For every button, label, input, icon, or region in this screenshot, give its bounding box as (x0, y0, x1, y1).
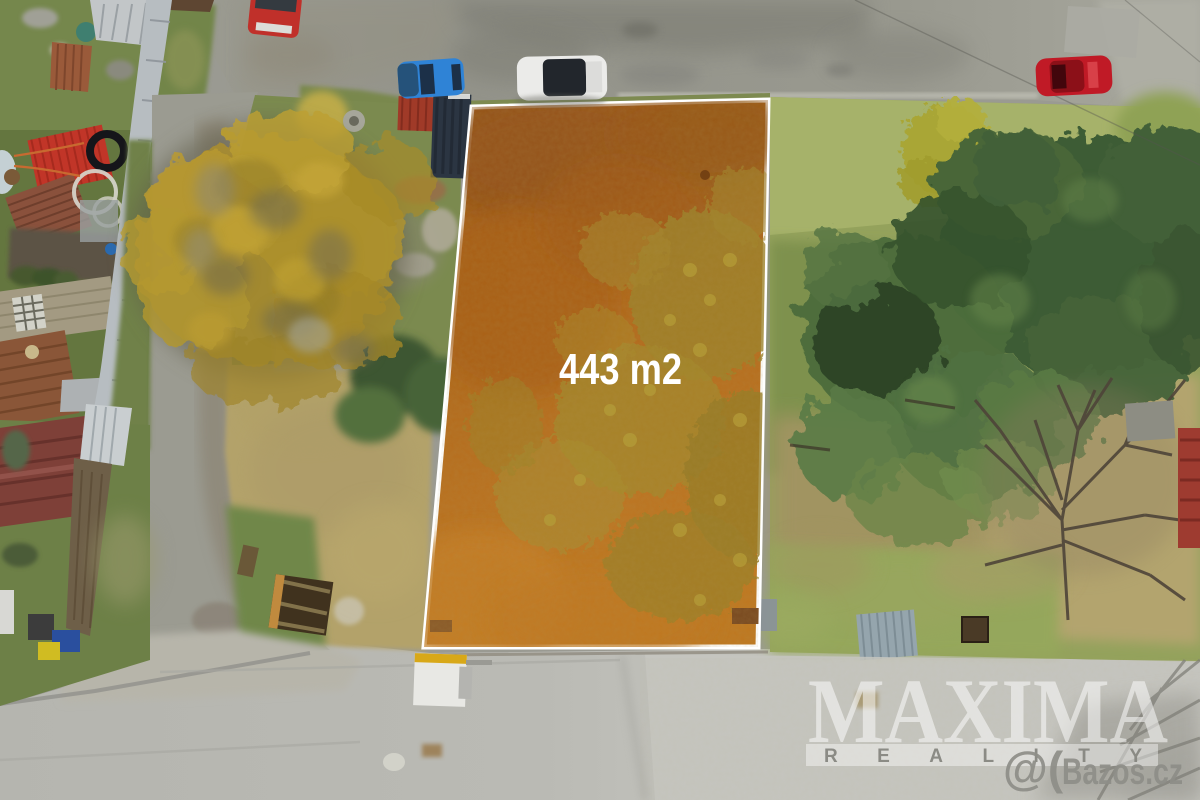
svg-text:Bazos.cz: Bazos.cz (1062, 751, 1183, 792)
svg-text:443 m2: 443 m2 (559, 345, 682, 394)
svg-text:@(: @( (1003, 742, 1064, 794)
